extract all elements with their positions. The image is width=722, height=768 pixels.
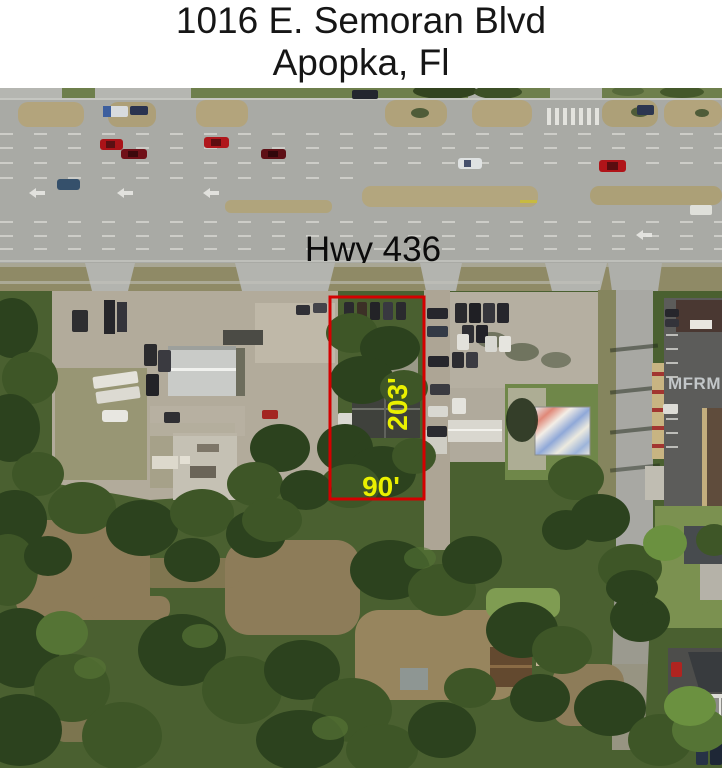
address-header: 1016 E. Semoran Blvd Apopka, Fl — [0, 0, 722, 88]
northeast-building — [676, 300, 722, 332]
dimension-depth-label: 203' — [382, 377, 413, 430]
highway: Hwy 436 — [0, 90, 722, 269]
aerial-photo: Hwy 436 — [0, 88, 722, 768]
mls-watermark: MFRMLS — [668, 374, 722, 393]
south-verge — [0, 263, 722, 291]
aerial-scene: Hwy 436 — [0, 88, 722, 768]
address-line-1: 1016 E. Semoran Blvd — [0, 0, 722, 42]
address-line-2: Apopka, Fl — [0, 42, 722, 84]
dimension-width-label: 90' — [362, 471, 400, 502]
